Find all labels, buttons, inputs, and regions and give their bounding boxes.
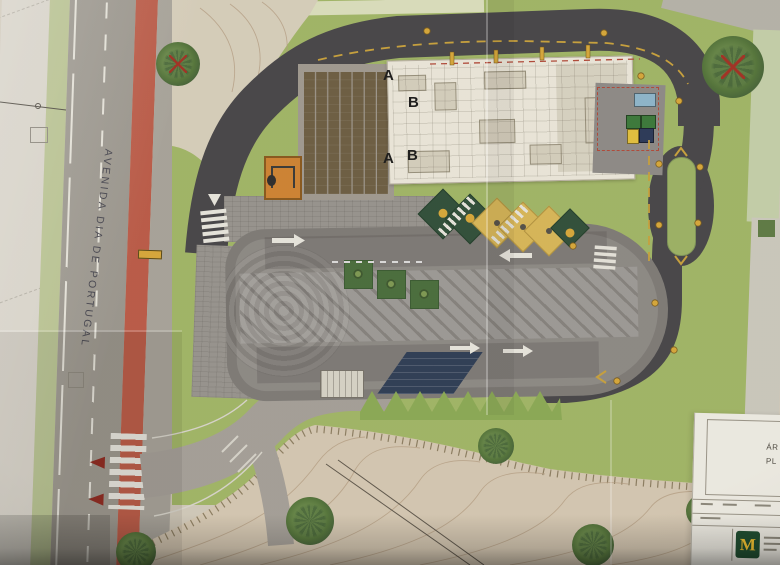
- section-marker-a-top: A: [383, 67, 394, 84]
- water-tank: [634, 93, 656, 107]
- title-partial-text: PL: [766, 457, 777, 466]
- utility-box-symbol: [30, 127, 48, 143]
- east-sidewalk: [744, 217, 780, 430]
- title-table-line: [693, 513, 780, 517]
- micro-text-bar: [723, 503, 737, 505]
- micro-text-bar: [764, 549, 777, 551]
- drive-thru-island: [667, 157, 696, 256]
- mcdonalds-logo-icon: M: [735, 531, 760, 559]
- title-partial-text: ÁR: [766, 443, 778, 452]
- site-plan-photo: AVENIDA DIA DE PORTUGAL: [0, 0, 780, 565]
- title-table-divider: [731, 529, 733, 561]
- furniture-block: [398, 75, 426, 92]
- section-marker-b-top: B: [408, 94, 419, 111]
- tree-icon: [156, 42, 200, 86]
- play-structure: [264, 156, 302, 200]
- parking-planting-island: [410, 280, 439, 309]
- title-block: ÁR PL M: [690, 413, 780, 565]
- east-planting-square: [758, 220, 775, 237]
- parking-planting-island: [377, 270, 406, 299]
- fold-crease: [0, 330, 182, 332]
- title-table-line: [693, 499, 780, 503]
- parking-planting-island: [344, 260, 373, 289]
- tree-icon: [478, 428, 514, 464]
- boundary-dash-line: [0, 0, 54, 19]
- micro-text-bar: [764, 543, 780, 545]
- title-table-line: [692, 525, 780, 529]
- tree-icon: [572, 524, 614, 565]
- boundary-dash-line: [0, 287, 42, 308]
- micro-text-bar: [701, 503, 713, 505]
- corner-shadow: [0, 515, 110, 565]
- recycling-bin: [626, 115, 641, 129]
- technical-cabin: [320, 370, 364, 398]
- logo-letter: M: [739, 536, 755, 553]
- furniture-block: [434, 82, 457, 110]
- tree-icon: [286, 497, 334, 545]
- fold-crease: [610, 400, 612, 565]
- micro-text-bar: [764, 537, 780, 539]
- bus-stop-marking: [138, 250, 162, 260]
- section-marker-b-bottom: B: [407, 147, 418, 164]
- fold-shading: [488, 0, 514, 415]
- play-equipment: [267, 175, 276, 186]
- recycling-bin: [641, 115, 656, 129]
- outdoor-terrace: [298, 64, 394, 200]
- section-marker-a-bottom: A: [383, 150, 394, 167]
- tree-icon: [702, 36, 764, 98]
- micro-text-bar: [700, 517, 720, 520]
- terrace-tables: [304, 72, 388, 194]
- furniture-block: [530, 144, 562, 165]
- waste-bin-yellow: [627, 129, 639, 144]
- micro-text-bar: [755, 504, 771, 506]
- waste-bin-blue: [639, 128, 654, 143]
